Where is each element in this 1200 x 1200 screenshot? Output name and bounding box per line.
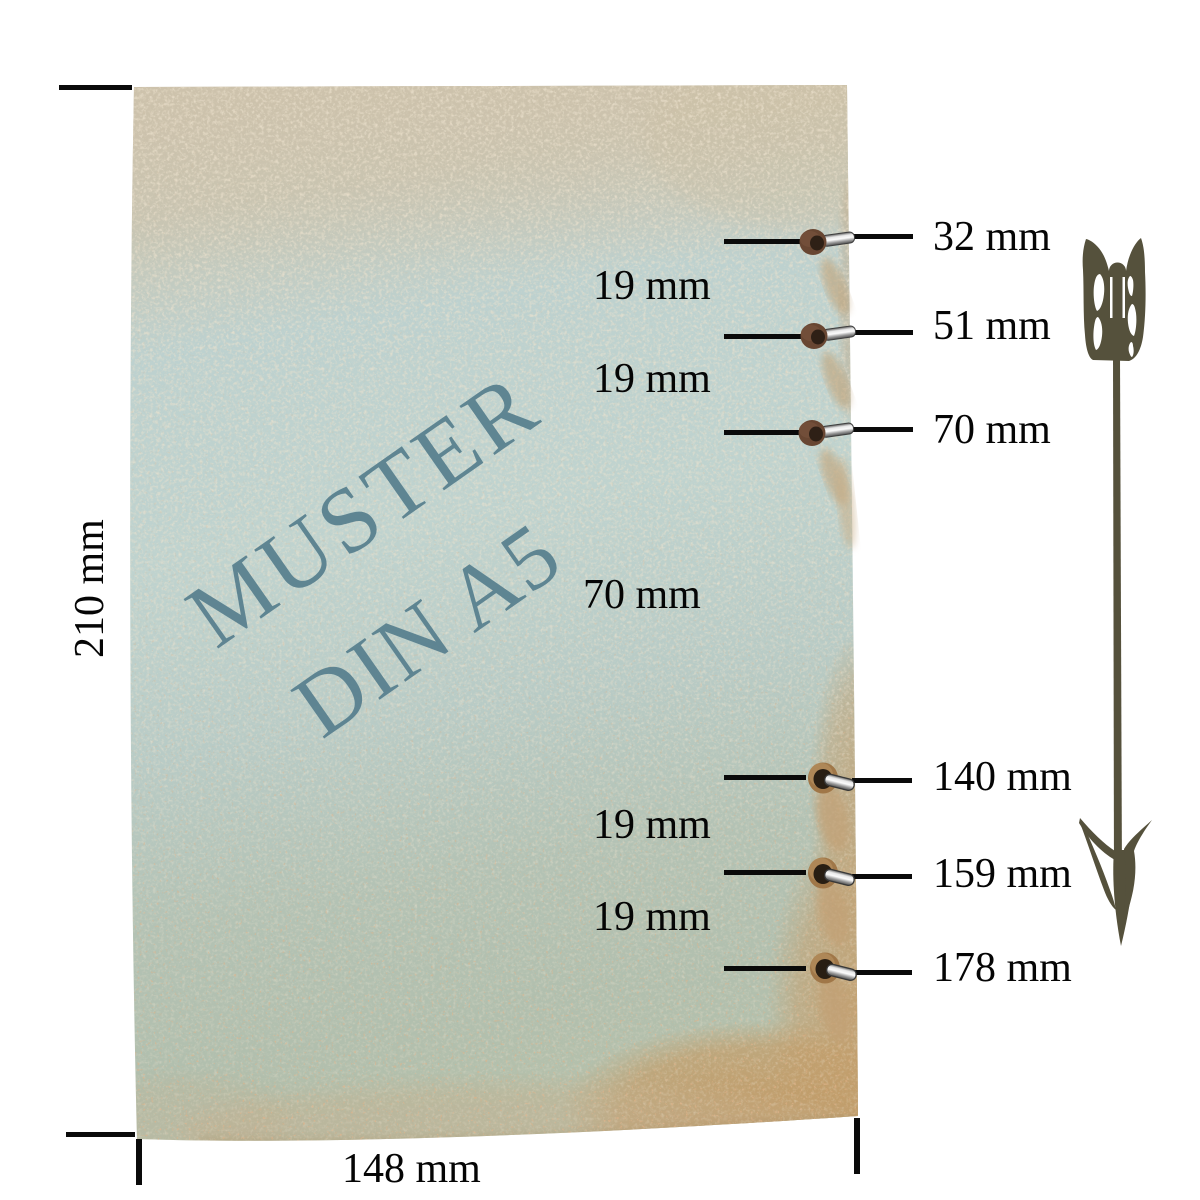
svg-text:140 mm: 140 mm xyxy=(933,754,1072,800)
svg-text:51 mm: 51 mm xyxy=(933,303,1051,349)
svg-text:32 mm: 32 mm xyxy=(933,214,1051,260)
svg-text:19 mm: 19 mm xyxy=(593,802,711,848)
svg-text:70 mm: 70 mm xyxy=(583,572,701,618)
svg-text:148 mm: 148 mm xyxy=(342,1146,481,1192)
svg-text:19 mm: 19 mm xyxy=(593,263,711,309)
svg-text:19 mm: 19 mm xyxy=(593,894,711,940)
svg-text:19 mm: 19 mm xyxy=(593,356,711,402)
svg-text:178 mm: 178 mm xyxy=(933,945,1072,991)
svg-text:70 mm: 70 mm xyxy=(933,407,1051,453)
svg-text:159 mm: 159 mm xyxy=(933,851,1072,897)
svg-text:210 mm: 210 mm xyxy=(67,519,113,658)
